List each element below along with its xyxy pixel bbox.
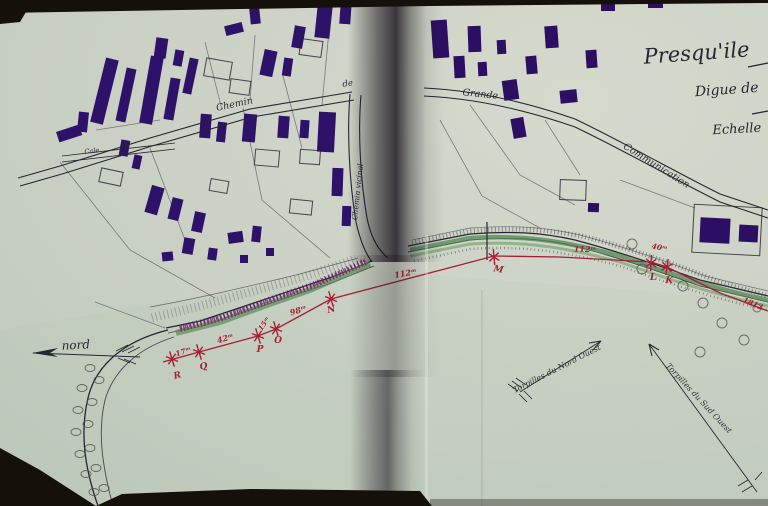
map-photo: Chemin de Grande Communication Chemin vi… — [0, 0, 768, 506]
station-letter: P — [256, 345, 264, 355]
page-edge-highlight — [425, 235, 428, 506]
station-letter: L — [649, 273, 656, 283]
page-crease — [481, 290, 483, 506]
road-label-cale: Cale — [84, 146, 100, 156]
north-label: nord — [61, 337, 90, 352]
station-letter: O — [274, 336, 282, 346]
map-canvas: Chemin de Grande Communication Chemin vi… — [0, 0, 768, 506]
scale-label: Echelle — [711, 121, 762, 139]
measurement-label: 112ᵐ — [574, 244, 597, 255]
